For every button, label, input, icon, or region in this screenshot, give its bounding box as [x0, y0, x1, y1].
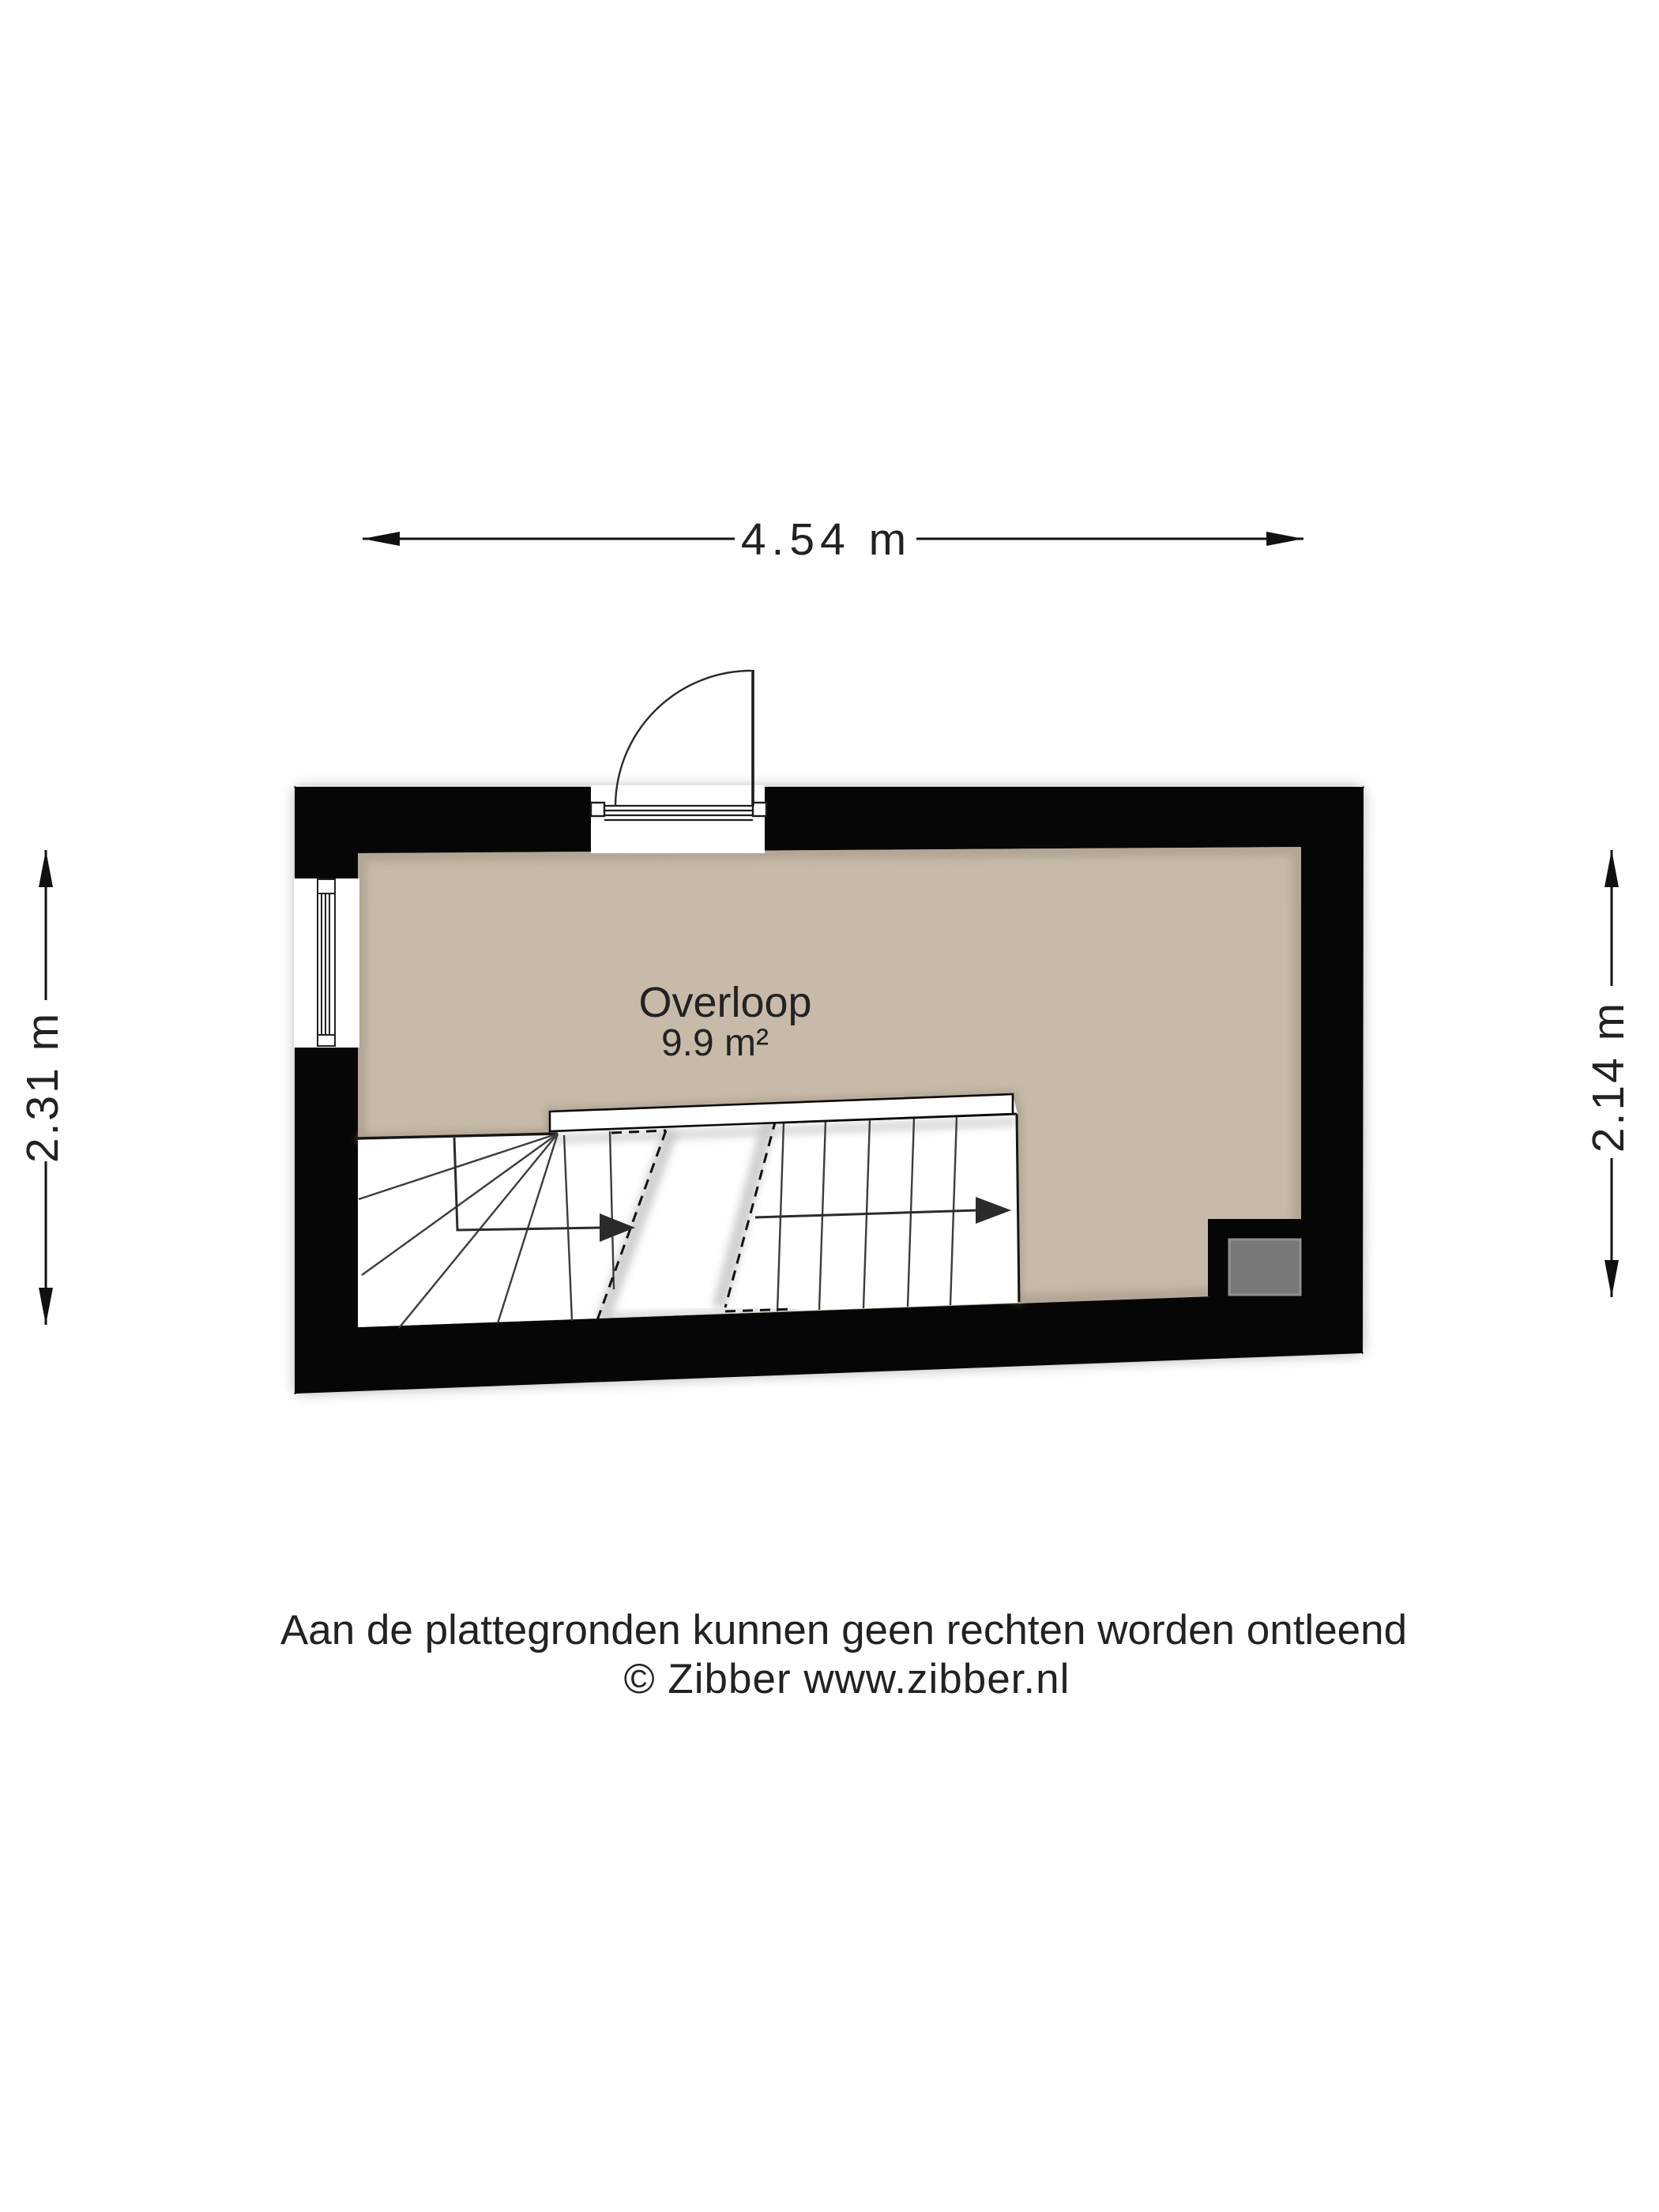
svg-text:Aan de plattegronden kunnen ge: Aan de plattegronden kunnen geen rechten… — [280, 1607, 1407, 1653]
svg-text:2.14 m: 2.14 m — [1583, 1001, 1634, 1153]
svg-text:Overloop: Overloop — [638, 979, 811, 1026]
svg-text:4.54 m: 4.54 m — [741, 514, 912, 565]
svg-text:2.31 m: 2.31 m — [17, 1011, 68, 1163]
svg-text:9.9 m²: 9.9 m² — [661, 1022, 769, 1064]
svg-text:© Zibber www.zibber.nl: © Zibber www.zibber.nl — [624, 1656, 1070, 1702]
